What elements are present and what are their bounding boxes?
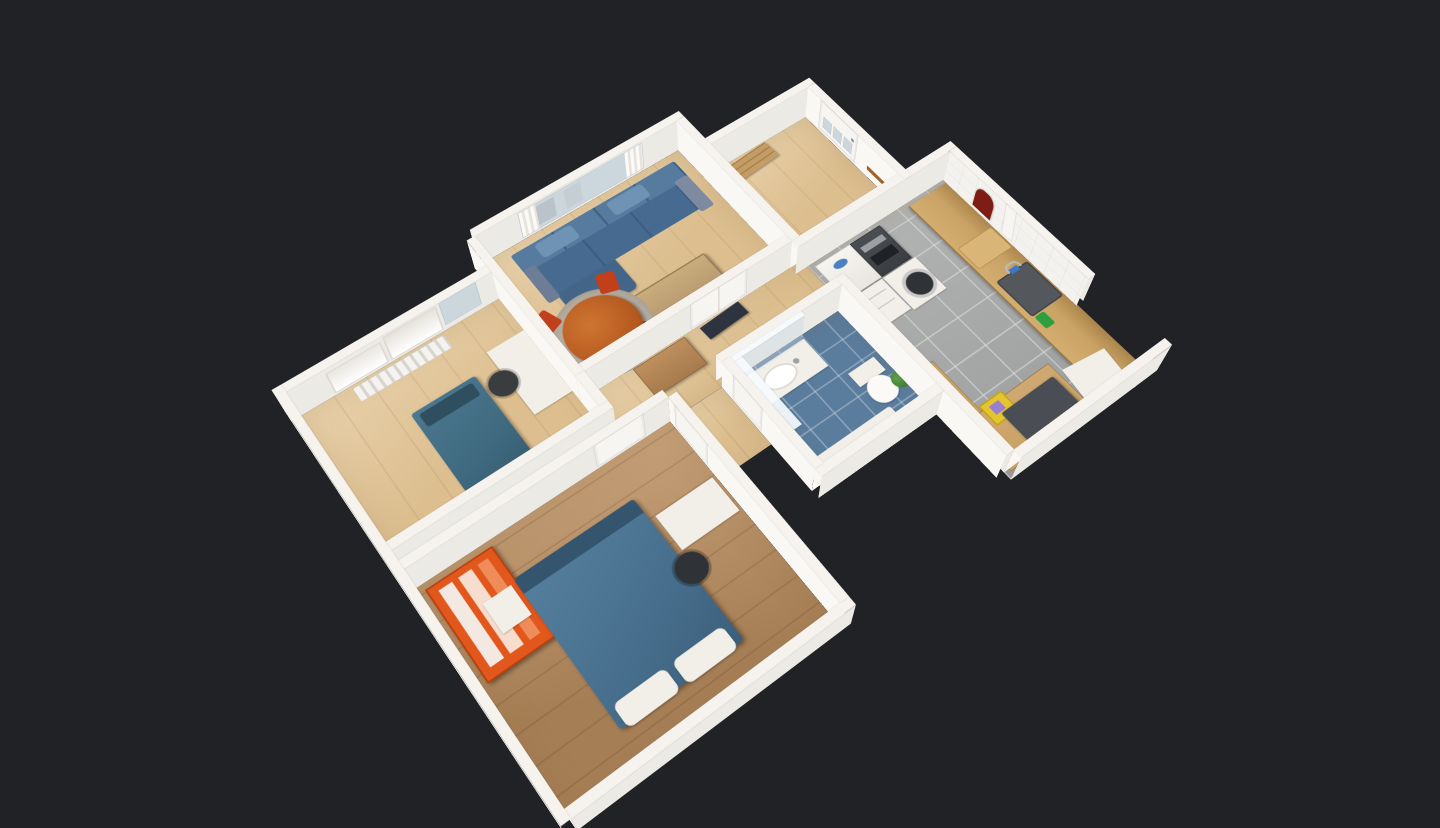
door-split-line (718, 286, 719, 311)
apartment-model[interactable] (278, 67, 1164, 828)
vanity-faucet (792, 357, 801, 365)
entry-door-pane (833, 126, 843, 145)
dollhouse-viewport[interactable] (0, 0, 1440, 810)
green-bottle (1034, 311, 1055, 329)
oven-window (870, 244, 900, 266)
entry-door-pane (823, 116, 832, 135)
window-building-view (564, 181, 583, 209)
